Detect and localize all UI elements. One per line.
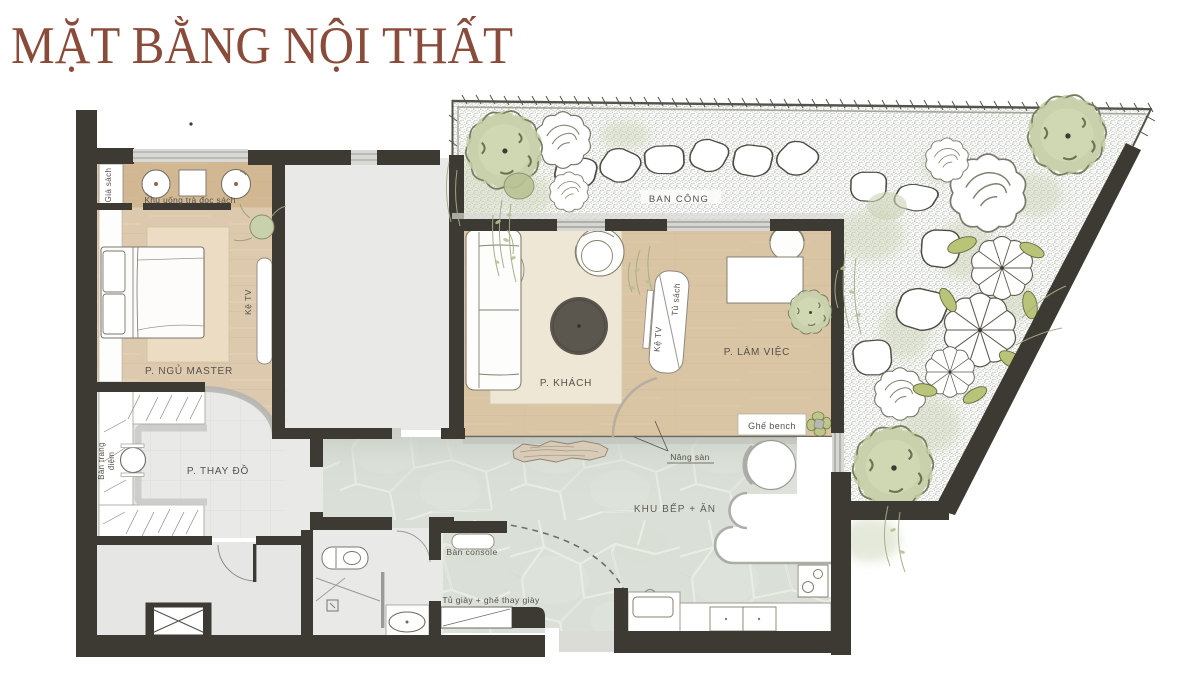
svg-text:Ghế bench: Ghế bench xyxy=(748,421,796,431)
svg-text:BAN CÔNG: BAN CÔNG xyxy=(649,194,709,205)
svg-text:Bàn trang: Bàn trang xyxy=(97,442,106,479)
svg-text:Khu uống trà đọc sách: Khu uống trà đọc sách xyxy=(144,195,235,205)
svg-text:Tủ giày + ghế thay giày: Tủ giày + ghế thay giày xyxy=(442,595,540,605)
svg-text:KHU BẾP + ĂN: KHU BẾP + ĂN xyxy=(634,502,716,515)
svg-text:Kệ TV: Kệ TV xyxy=(243,289,253,315)
svg-text:Nâng sàn: Nâng sàn xyxy=(670,452,710,462)
svg-text:Kệ TV: Kệ TV xyxy=(652,326,664,352)
svg-text:MẶT BẰNG NỘI THẤT: MẶT BẰNG NỘI THẤT xyxy=(11,16,513,75)
svg-text:điệm: điệm xyxy=(107,452,116,471)
svg-text:P. THAY ĐỒ: P. THAY ĐỒ xyxy=(187,464,249,477)
svg-text:P. KHÁCH: P. KHÁCH xyxy=(540,376,592,389)
svg-text:Bàn console: Bàn console xyxy=(446,547,497,557)
svg-text:P. LÀM VIỆC: P. LÀM VIỆC xyxy=(724,345,790,358)
svg-text:P. NGỦ MASTER: P. NGỦ MASTER xyxy=(145,364,233,377)
svg-text:Giá sách: Giá sách xyxy=(104,168,113,203)
